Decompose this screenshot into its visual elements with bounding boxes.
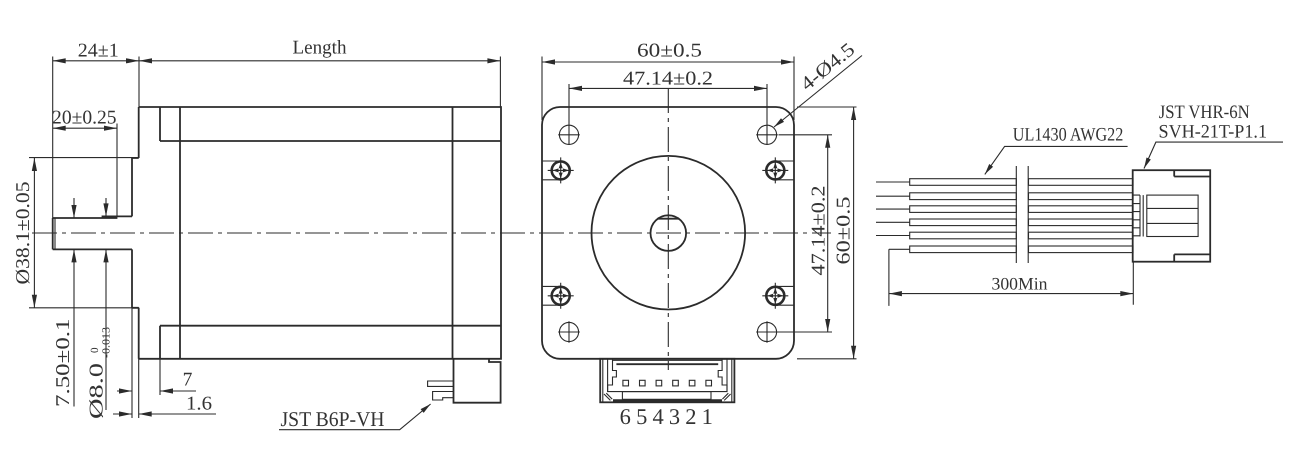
svg-text:Length: Length xyxy=(293,38,347,59)
svg-text:60±0.5: 60±0.5 xyxy=(834,197,855,265)
svg-text:JST VHR-6N: JST VHR-6N xyxy=(1159,102,1250,123)
svg-text:1: 1 xyxy=(702,404,713,429)
svg-text:3: 3 xyxy=(669,404,680,429)
svg-text:0: 0 xyxy=(89,347,101,353)
svg-text:SVH-21T-P1.1: SVH-21T-P1.1 xyxy=(1159,121,1268,142)
svg-text:Ø38.1±0.05: Ø38.1±0.05 xyxy=(13,182,34,285)
svg-text:47.14±0.2: 47.14±0.2 xyxy=(809,186,830,276)
svg-text:47.14±0.2: 47.14±0.2 xyxy=(623,69,713,90)
svg-text:1.6: 1.6 xyxy=(186,394,212,415)
svg-text:5: 5 xyxy=(636,404,647,429)
svg-text:7: 7 xyxy=(183,370,193,391)
svg-text:Ø8.0: Ø8.0 xyxy=(87,363,108,419)
svg-text:7.50±0.1: 7.50±0.1 xyxy=(53,319,74,408)
svg-text:300Min: 300Min xyxy=(992,274,1048,294)
svg-text:2: 2 xyxy=(685,404,696,429)
svg-text:4-Ø4.5: 4-Ø4.5 xyxy=(797,39,859,95)
svg-text:24±1: 24±1 xyxy=(78,41,119,62)
svg-text:6: 6 xyxy=(620,404,631,429)
svg-text:-0.013: -0.013 xyxy=(101,326,113,358)
svg-text:60±0.5: 60±0.5 xyxy=(637,41,702,62)
svg-text:4: 4 xyxy=(652,404,663,429)
svg-text:JST B6P-VH: JST B6P-VH xyxy=(281,407,385,431)
svg-text:UL1430 AWG22: UL1430 AWG22 xyxy=(1013,125,1124,146)
svg-text:20±0.25: 20±0.25 xyxy=(52,107,117,128)
